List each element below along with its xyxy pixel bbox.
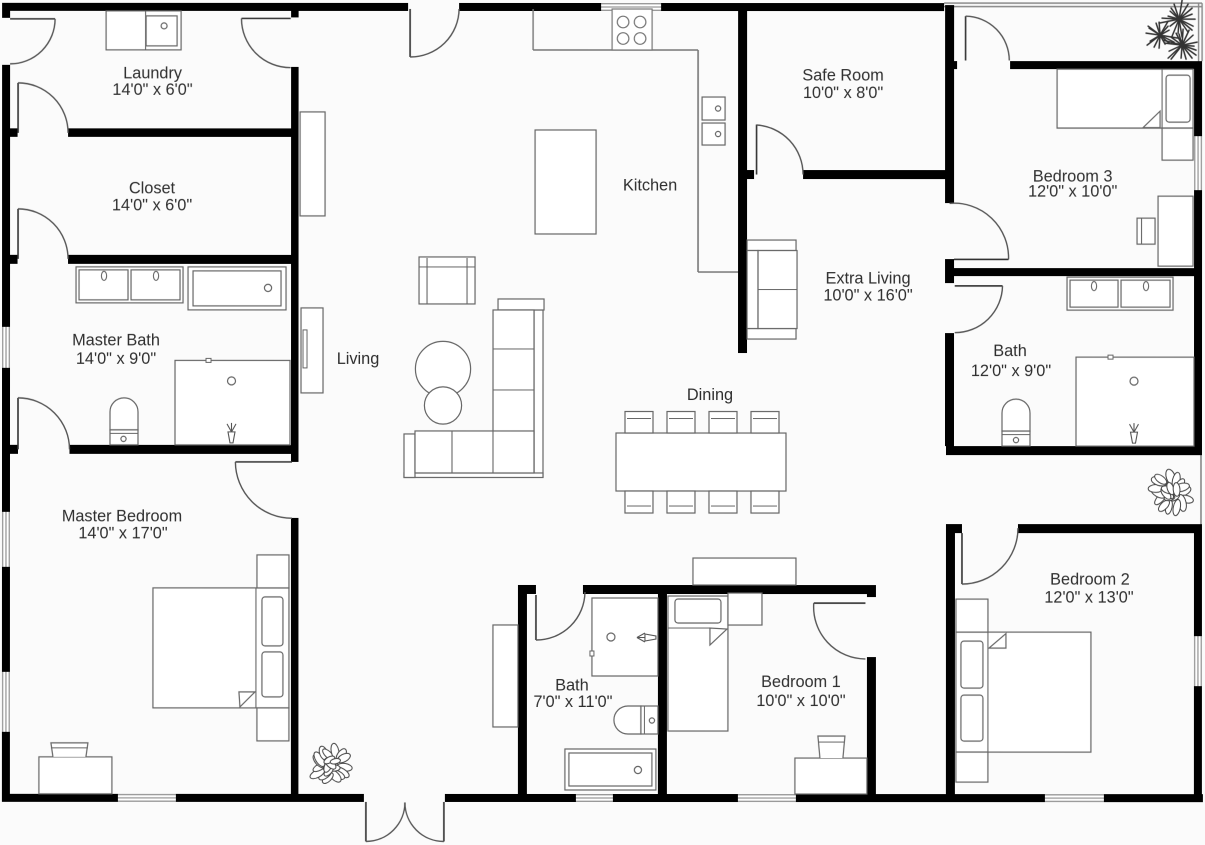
svg-text:Extra Living: Extra Living — [825, 269, 910, 287]
svg-text:10'0" x 8'0": 10'0" x 8'0" — [803, 84, 883, 102]
svg-text:Kitchen: Kitchen — [623, 176, 677, 194]
svg-text:12'0" x 13'0": 12'0" x 13'0" — [1044, 588, 1134, 606]
svg-text:Master Bedroom: Master Bedroom — [62, 507, 182, 525]
svg-text:10'0" x 16'0": 10'0" x 16'0" — [823, 286, 913, 304]
svg-text:12'0" x 9'0": 12'0" x 9'0" — [971, 362, 1051, 380]
svg-text:Living: Living — [337, 350, 380, 368]
svg-text:Bath: Bath — [993, 342, 1027, 360]
svg-text:14'0" x 17'0": 14'0" x 17'0" — [78, 524, 168, 542]
svg-text:Laundry: Laundry — [123, 65, 183, 83]
svg-text:14'0" x 6'0": 14'0" x 6'0" — [112, 196, 192, 214]
svg-text:Safe Room: Safe Room — [802, 66, 883, 84]
svg-text:Closet: Closet — [129, 179, 176, 197]
svg-text:12'0" x 10'0": 12'0" x 10'0" — [1028, 183, 1118, 201]
svg-text:10'0" x 10'0": 10'0" x 10'0" — [756, 692, 846, 710]
svg-text:Master Bath: Master Bath — [72, 331, 160, 349]
svg-text:14'0" x 9'0": 14'0" x 9'0" — [76, 350, 156, 368]
svg-text:Bedroom 1: Bedroom 1 — [761, 673, 841, 691]
svg-text:14'0" x 6'0": 14'0" x 6'0" — [112, 81, 192, 99]
svg-text:Bedroom 2: Bedroom 2 — [1050, 571, 1130, 589]
svg-text:Dining: Dining — [687, 386, 733, 404]
svg-text:7'0" x 11'0": 7'0" x 11'0" — [533, 693, 612, 711]
